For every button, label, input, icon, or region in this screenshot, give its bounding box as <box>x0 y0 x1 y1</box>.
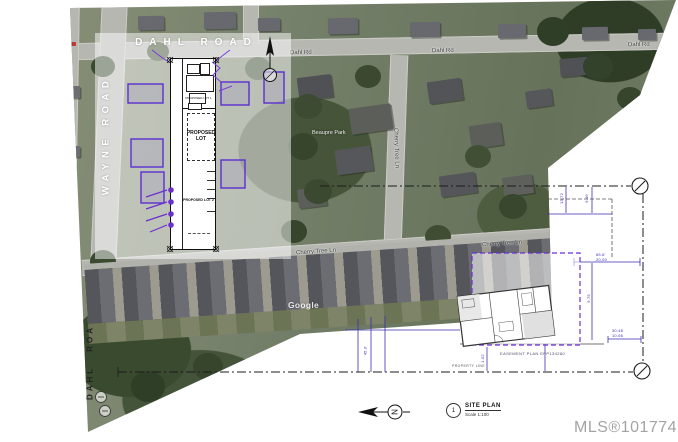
house-roof <box>427 78 464 105</box>
house-roof <box>297 74 334 101</box>
overlay-wayne-road-label: WAYNE ROAD <box>101 66 112 206</box>
existing-building-outline <box>200 63 210 75</box>
house-roof <box>297 186 327 208</box>
drawing-title-block: 1 SITE PLAN Scale 1:100 <box>446 403 501 418</box>
road-west <box>52 0 80 212</box>
house-roof <box>469 122 504 149</box>
drawing-scale: Scale 1:100 <box>465 412 501 417</box>
tree-cluster <box>0 0 16 13</box>
house-roof <box>498 24 526 38</box>
dimension-label: 9.75 <box>586 294 591 303</box>
house-roof <box>60 86 80 98</box>
house-roof <box>62 146 80 157</box>
house-roof <box>258 18 280 31</box>
easement-label: EASEMENT PLAN EPP134280 <box>500 351 565 356</box>
dimension-label: 45.0' <box>362 346 367 356</box>
plan-tick <box>207 171 215 172</box>
margin-dahl-road-label: DAHL ROA <box>86 303 95 423</box>
house-roof <box>559 57 588 77</box>
plan-tick <box>207 211 215 212</box>
plan-tick <box>207 189 215 190</box>
lot1-label: PROPOSED LOT 1 <box>183 97 214 100</box>
house-roof <box>502 174 534 197</box>
dimension-label: 1.52 <box>480 354 485 363</box>
house-roof <box>334 146 373 176</box>
road-label-dahl: Dahl Rd <box>628 42 650 48</box>
listing-image-page: Dahl Rd Dahl Rd Dahl Rd Cherry Tree Ln C… <box>0 0 678 442</box>
north-arrow-icon: N <box>358 405 410 419</box>
detail-number-badge: 1 <box>446 403 461 418</box>
offset-lines <box>548 199 612 258</box>
parked-car <box>68 42 76 46</box>
house-roof <box>439 172 478 198</box>
house-roof <box>204 12 236 30</box>
house-roof <box>525 88 553 108</box>
dimension-label: 13.72 <box>559 193 564 204</box>
existing-building-outline <box>187 64 200 74</box>
house-roof <box>138 16 164 30</box>
property-line-label: PROPERTY LINE <box>452 364 485 368</box>
north-letter: N <box>391 409 400 415</box>
overlay-dahl-road-label: DAHL ROAD <box>95 37 291 48</box>
parked-car <box>60 55 68 59</box>
house-roof <box>638 29 656 40</box>
house-roof <box>410 22 440 38</box>
plan-tick <box>207 180 215 181</box>
parked-car <box>58 32 66 36</box>
existing-building-outline <box>186 75 214 92</box>
dimension-label: 10.06 <box>612 333 623 338</box>
drawing-title: SITE PLAN <box>465 403 501 411</box>
house-roof <box>582 27 608 40</box>
road-label-dahl: Dahl Rd <box>432 48 454 54</box>
proposed-lot-box: PROPOSED LOT <box>187 113 215 161</box>
place-label: Beaupre Park <box>312 130 346 136</box>
plan-tick <box>207 198 215 199</box>
map-credit: Google <box>288 300 319 310</box>
existing-building-outline <box>188 103 202 110</box>
lot2-label: PROPOSED LOT 2 <box>183 199 214 203</box>
dimension-label: 20.00 <box>596 257 607 262</box>
mls-watermark: MLS®1017746 <box>574 419 678 437</box>
road-label-dahl: Dahl Rd <box>290 50 312 56</box>
dimension-label: 9.46 <box>584 194 589 203</box>
plan-dashed-line <box>188 233 210 234</box>
house-roof <box>328 18 358 35</box>
site-plan-drawing: PROPOSED LOT 1 PROPOSED LOT PROPOSED LOT… <box>170 58 216 250</box>
